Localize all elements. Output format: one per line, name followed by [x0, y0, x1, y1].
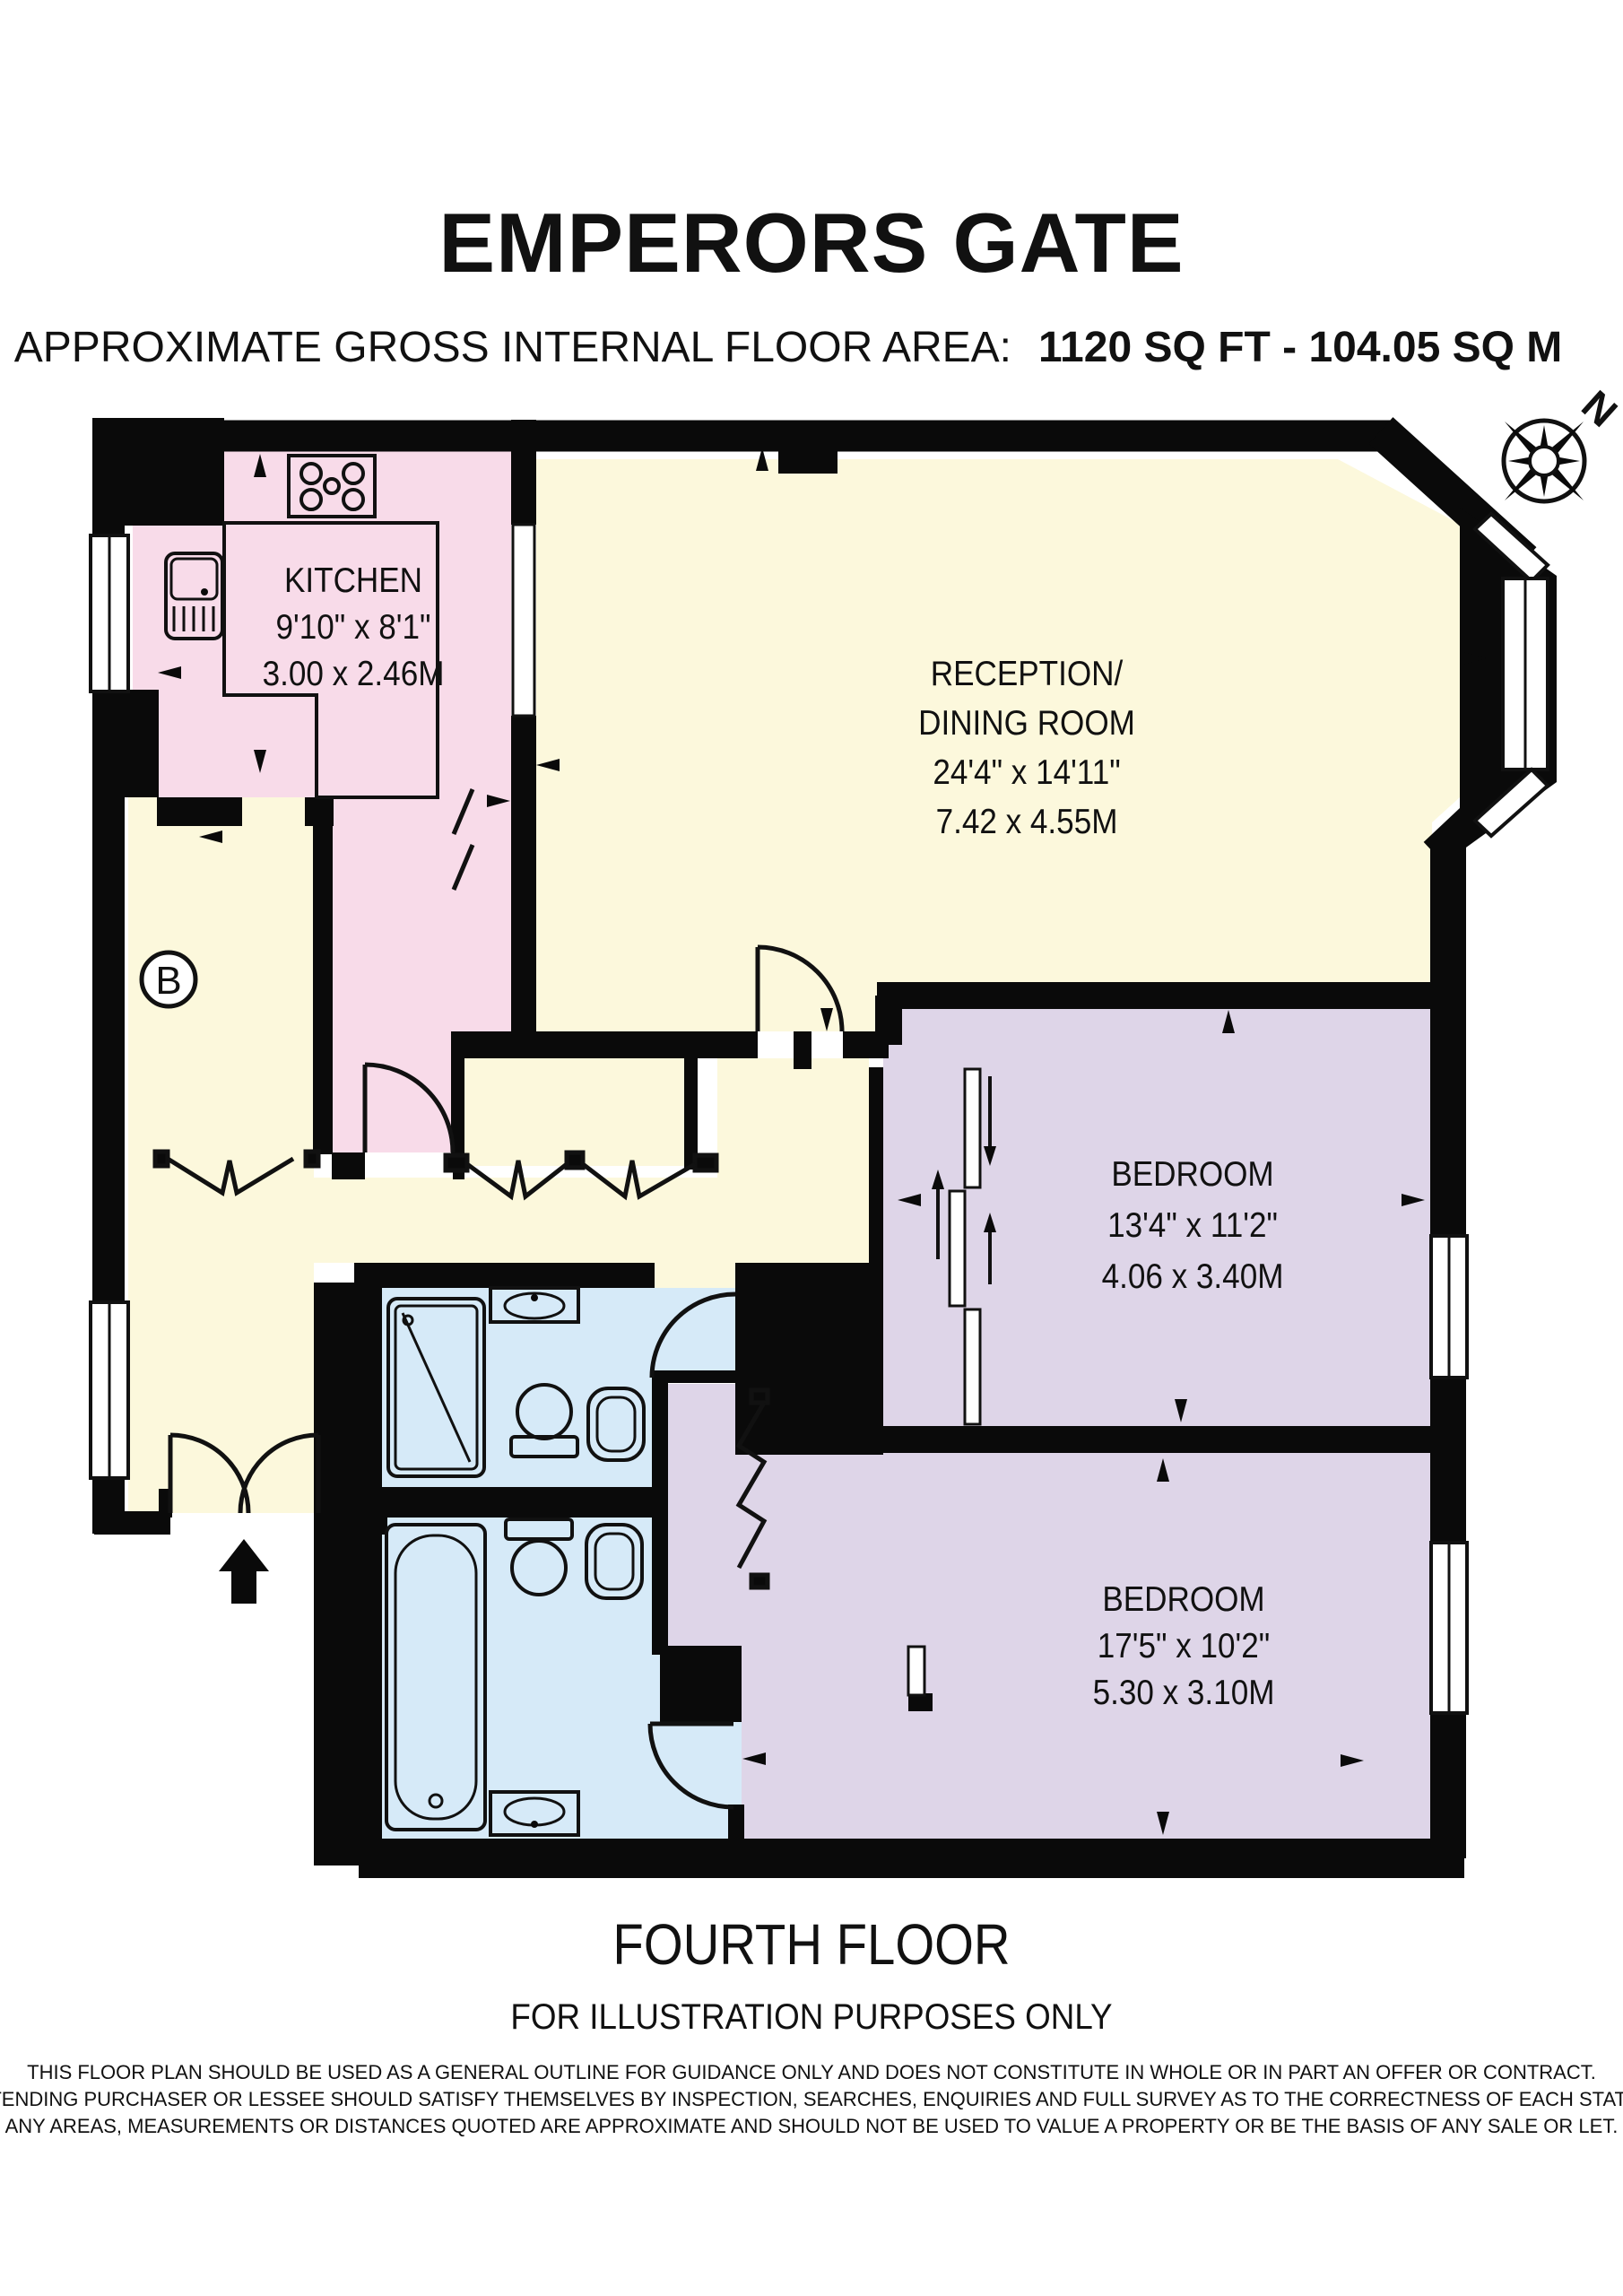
note-group: FOR ILLUSTRATION PURPOSES ONLY [510, 1997, 1112, 2038]
kitchen-window [91, 535, 128, 691]
reception-imperial: 24'4" x 14'11" [933, 752, 1120, 791]
bedroom2-pocket-panel [908, 1647, 924, 1695]
floorplan-canvas: EMPERORS GATE APPROXIMATE GROSS INTERNAL… [0, 0, 1623, 2296]
disclaimer-line-3: ANY AREAS, MEASUREMENTS OR DISTANCES QUO… [5, 2115, 1619, 2137]
disclaimer-line-1: THIS FLOOR PLAN SHOULD BE USED AS A GENE… [27, 2061, 1596, 2083]
bedroom2-label: BEDROOM 17'5" x 10'2" 5.30 x 3.10M [1093, 1578, 1275, 1711]
bedroom1-window [1431, 1236, 1467, 1378]
kitchen-name: KITCHEN [284, 560, 422, 599]
reception-floor [536, 459, 1487, 1031]
bedroom1-metric: 4.06 x 3.40M [1102, 1256, 1284, 1295]
hall-opening-floor [717, 1058, 869, 1267]
floor-label-group: FOURTH FLOOR [612, 1912, 1010, 1977]
bathroom1-approach [652, 1261, 735, 1290]
kitchen-metric: 3.00 x 2.46M [263, 653, 445, 692]
closet-room-floor [464, 1058, 684, 1166]
bedroom1-label: BEDROOM 13'4" x 11'2" 4.06 x 3.40M [1102, 1153, 1284, 1295]
hob [289, 456, 375, 517]
area-value: 1120 SQ FT - 104.05 SQ M [1038, 324, 1562, 371]
illustration-note: FOR ILLUSTRATION PURPOSES ONLY [510, 1997, 1112, 2038]
bedroom1-name: BEDROOM [1111, 1153, 1273, 1193]
page-title: EMPERORS GATE [438, 196, 1184, 290]
entry-arrow [219, 1539, 269, 1604]
bedroom2-metric: 5.30 x 3.10M [1093, 1672, 1275, 1711]
block-label: B [142, 952, 195, 1006]
glazed-strip [513, 525, 534, 716]
reception-name1: RECEPTION/ [931, 653, 1124, 692]
bedroom2-window [1431, 1543, 1467, 1713]
reception-name2: DINING ROOM [918, 702, 1135, 742]
compass-rose: N [1504, 381, 1623, 501]
bedroom2-name: BEDROOM [1102, 1578, 1264, 1618]
reception-metric: 7.42 x 4.55M [936, 801, 1118, 840]
kitchen-imperial: 9'10" x 8'1" [276, 606, 431, 646]
bedroom2-imperial: 17'5" x 10'2" [1098, 1625, 1270, 1665]
hall-window [91, 1302, 128, 1478]
compass-north-label: N [1573, 381, 1623, 436]
block-label-text: B [155, 959, 181, 1003]
area-label: APPROXIMATE GROSS INTERNAL FLOOR AREA: [14, 324, 1011, 371]
floorplan-page: EMPERORS GATE APPROXIMATE GROSS INTERNAL… [0, 0, 1623, 2296]
kitchen-label: KITCHEN 9'10" x 8'1" 3.00 x 2.46M [263, 560, 445, 692]
disclaimer-line-2: ANY INTENDING PURCHASER OR LESSEE SHOULD… [0, 2088, 1623, 2110]
floor-label: FOURTH FLOOR [612, 1912, 1010, 1977]
bedroom1-imperial: 13'4" x 11'2" [1107, 1205, 1278, 1244]
